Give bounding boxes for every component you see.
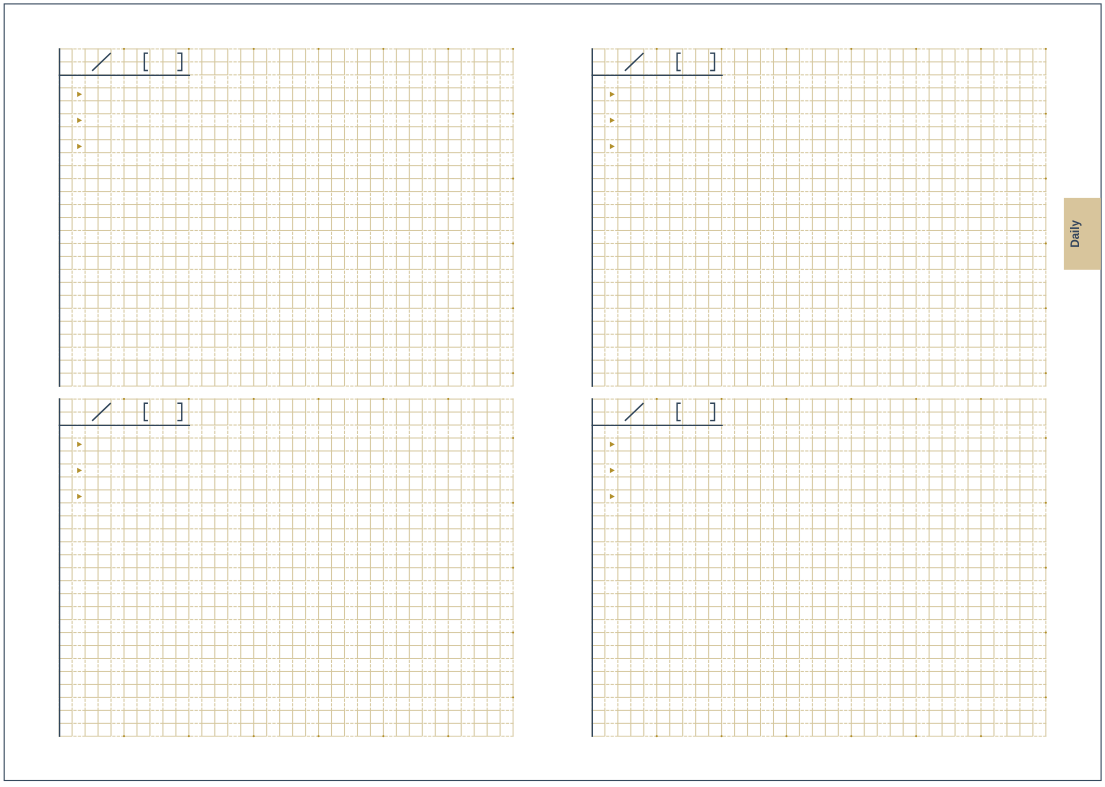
svg-text:Daily: Daily [1070,220,1082,248]
